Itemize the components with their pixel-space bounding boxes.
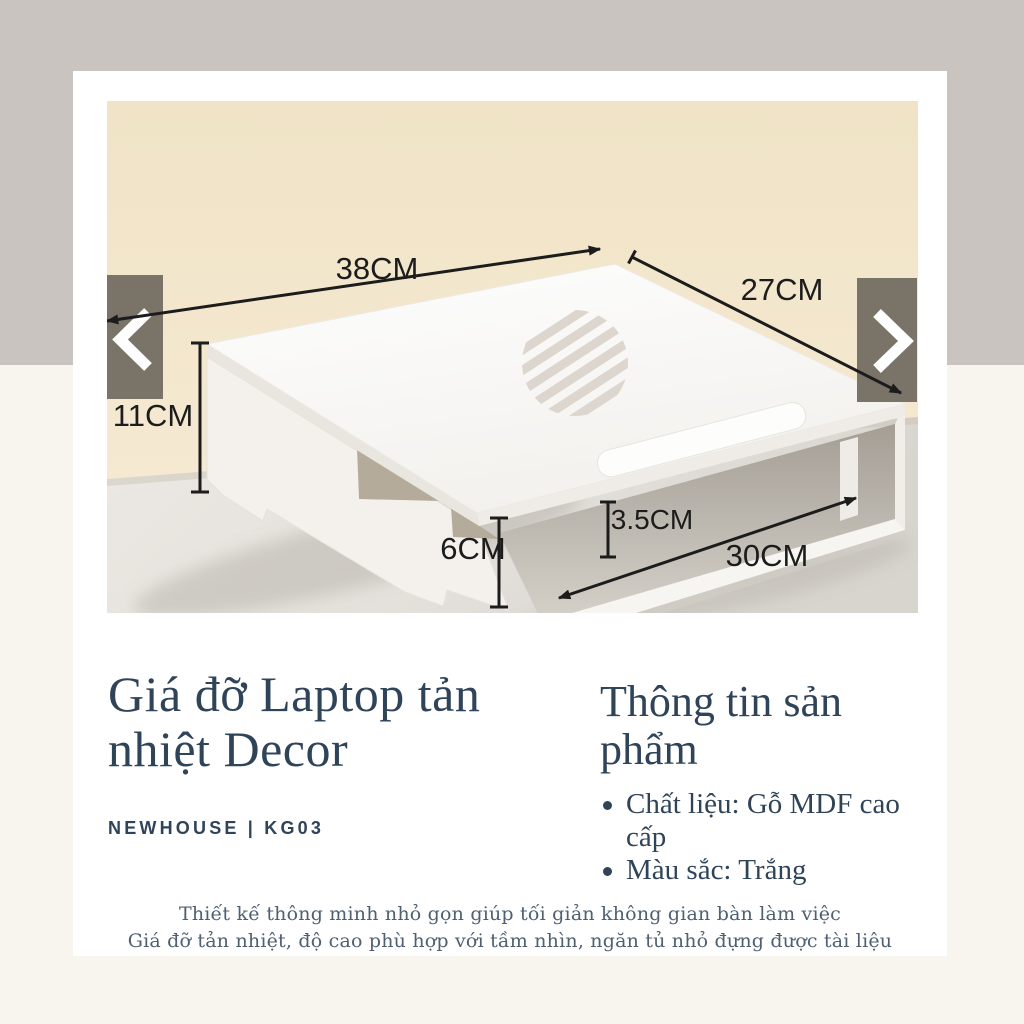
info-bullet-color: Màu sắc: Trắng <box>600 854 930 887</box>
dim-label-30cm: 30CM <box>726 538 809 573</box>
carousel-next-button[interactable] <box>857 278 917 402</box>
dim-label-11cm: 11CM <box>113 398 193 433</box>
dim-label-3-5cm: 3.5CM <box>611 504 693 535</box>
dim-label-38cm: 38CM <box>336 251 419 286</box>
bullet-dot-icon <box>603 801 612 810</box>
shelf-divider <box>840 437 858 521</box>
bullet-dot-icon <box>603 867 612 876</box>
info-heading: Thông tin sản phẩm <box>600 678 930 774</box>
product-title: Giá đỡ Laptop tản nhiệt Decor <box>108 667 548 777</box>
dim-label-6cm: 6CM <box>440 531 505 566</box>
stand-right-edge <box>895 404 905 530</box>
info-bullet-list: Chất liệu: Gỗ MDF cao cấp Màu sắc: Trắng <box>600 788 930 887</box>
brand-model-line: NEWHOUSE | KG03 <box>108 818 324 839</box>
info-bullet-color-text: Màu sắc: Trắng <box>626 854 806 886</box>
description-line-2: Giá đỡ tản nhiệt, độ cao phù hợp với tầm… <box>73 930 947 952</box>
carousel-prev-button[interactable] <box>107 275 163 399</box>
info-bullet-material: Chất liệu: Gỗ MDF cao cấp <box>600 788 930 854</box>
product-photo: 38CM 27CM 11CM 6CM 3.5CM 30CM <box>107 101 918 613</box>
product-card: 38CM 27CM 11CM 6CM 3.5CM 30CM Giá đỡ Lap… <box>73 71 947 956</box>
page: 38CM 27CM 11CM 6CM 3.5CM 30CM Giá đỡ Lap… <box>0 0 1024 1024</box>
dim-label-27cm: 27CM <box>741 272 824 307</box>
description-line-1: Thiết kế thông minh nhỏ gọn giúp tối giả… <box>73 903 947 925</box>
info-bullet-material-text: Chất liệu: Gỗ MDF cao cấp <box>626 788 900 853</box>
